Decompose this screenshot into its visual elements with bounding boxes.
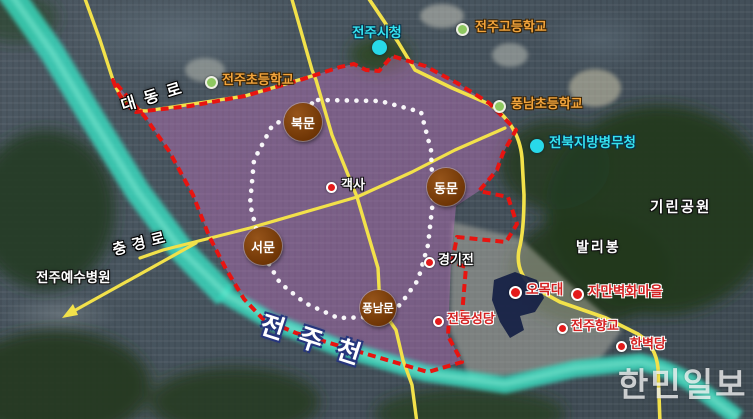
hanbyeokdang-label: 한벽당 [630, 338, 666, 351]
gaeksa-marker-icon [326, 182, 337, 193]
jeonju-hyanggyo-marker-icon [557, 323, 568, 334]
pungnam-elementary-school-label: 풍남초등학교 [511, 98, 583, 111]
city-hall-marker-icon [372, 40, 387, 55]
pungnam-elementary-school-marker-icon [493, 100, 506, 113]
hanbyeokdang-marker-icon [616, 341, 627, 352]
newspaper-watermark: 한민일보 [618, 368, 747, 401]
hospital-arrow-head [62, 304, 78, 318]
west-gate-badge: 서문 [244, 227, 282, 265]
gyeonggijeon-label: 경기전 [438, 254, 474, 267]
city-hall-label: 전주시청 [352, 27, 402, 41]
omokdae-label: 오목대 [526, 284, 563, 298]
jeondong-cathedral-label: 전동성당 [447, 313, 495, 326]
jesus-hospital-label: 전주예수병원 [36, 272, 111, 286]
girin-park-label: 기린공원 [650, 201, 711, 216]
jeonju-elementary-school-marker-icon [205, 76, 218, 89]
military-office-label: 전북지방병무청 [549, 137, 636, 151]
map-canvas: 전주시청 전주고등학교 전주초등학교 풍남초등학교 전북지방병무청 대동로 충경… [0, 0, 753, 419]
north-gate-badge: 북문 [284, 103, 322, 141]
jaman-mural-village-marker-icon [571, 288, 584, 301]
jeonju-hyanggyo-label: 전주향교 [571, 320, 619, 333]
omokdae-marker-icon [509, 286, 522, 299]
jeonju-elementary-school-label: 전주초등학교 [222, 74, 294, 87]
jeonju-high-school-marker-icon [456, 23, 469, 36]
east-gate-badge: 동문 [427, 168, 465, 206]
military-office-marker-icon [530, 139, 544, 153]
gaeksa-label: 객사 [341, 179, 365, 192]
jaman-mural-village-label: 자만벽화마을 [588, 286, 663, 300]
jeonju-high-school-label: 전주고등학교 [475, 21, 547, 34]
jeondong-cathedral-marker-icon [433, 316, 444, 327]
ballibong-label: 발리봉 [576, 241, 621, 255]
gyeonggijeon-marker-icon [424, 257, 435, 268]
pungnam-gate-badge: 풍남문 [360, 290, 396, 326]
